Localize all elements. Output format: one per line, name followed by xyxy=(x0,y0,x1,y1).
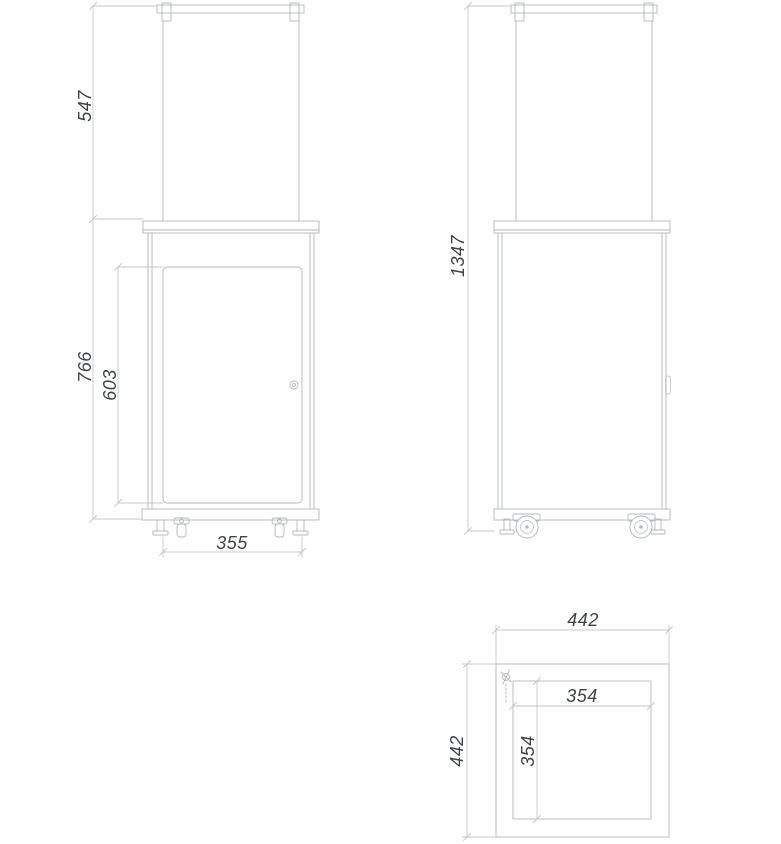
cabinet-lid xyxy=(494,221,670,233)
dim-side-overall-height xyxy=(465,3,512,535)
cabinet-walls xyxy=(498,233,666,509)
top-cap xyxy=(157,5,304,13)
dim-top-outer-width xyxy=(493,625,673,664)
glass-panel-edges xyxy=(163,21,299,221)
hinge-detail xyxy=(501,670,511,704)
drawing-canvas: 547 766 603 355 1347 442 442 354 354 xyxy=(0,0,781,844)
glass-tube-side xyxy=(511,3,657,221)
leveling-foot-left xyxy=(500,519,514,534)
top-cap-clamp-right xyxy=(290,3,299,21)
top-cap xyxy=(511,5,657,13)
front-view xyxy=(90,3,320,558)
caster-right xyxy=(628,514,655,538)
dim-label-top-inner-depth: 354 xyxy=(519,735,537,767)
door-lock-center xyxy=(293,384,296,387)
door-lock xyxy=(290,381,298,389)
caster-left xyxy=(174,518,189,537)
leveling-foot-left xyxy=(153,520,168,535)
leveling-foot-right xyxy=(293,520,308,535)
side-view xyxy=(465,3,671,539)
dim-top-outer-depth xyxy=(462,661,496,841)
dim-label-top-inner-width: 354 xyxy=(566,687,598,705)
top-cap-clamp-left xyxy=(162,3,171,21)
door xyxy=(163,267,302,503)
dim-label-front-cabinet-height: 766 xyxy=(76,351,94,383)
base-plate xyxy=(142,509,319,520)
caster-left xyxy=(513,514,540,538)
dim-label-side-overall-height: 1347 xyxy=(449,235,467,277)
dim-label-top-outer-depth: 442 xyxy=(448,735,466,767)
top-cap-clamp-right xyxy=(644,3,653,21)
caster-right xyxy=(272,518,287,537)
glass-tube-front xyxy=(157,3,304,221)
dim-label-top-outer-width: 442 xyxy=(567,611,599,629)
dim-label-front-glass-height: 547 xyxy=(76,90,94,122)
drawing-linework xyxy=(0,0,781,844)
glass-panel-edges xyxy=(516,21,652,221)
dim-front-door-height xyxy=(115,264,164,507)
dim-front-glass-height xyxy=(90,3,158,223)
dim-label-front-base-width: 355 xyxy=(216,534,248,552)
top-cap-clamp-left xyxy=(515,3,524,21)
cabinet-walls xyxy=(148,233,314,509)
top-view xyxy=(462,625,673,841)
dim-label-front-door-height: 603 xyxy=(101,369,119,401)
cabinet-lid xyxy=(143,221,319,233)
